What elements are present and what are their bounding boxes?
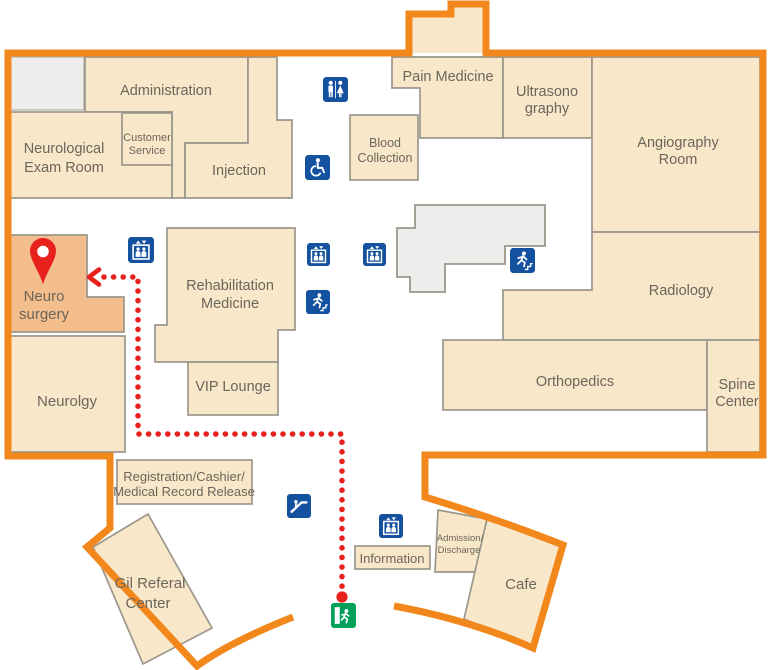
exit-icon (331, 603, 356, 628)
room-neuro-surgery-label-1: Neuro (24, 288, 65, 305)
restroom-icon (323, 77, 348, 102)
room-neuro-surgery-label-2: surgery (19, 306, 70, 323)
elevator-icon-4 (379, 514, 403, 538)
room-customer-service-label-1: Customer (123, 132, 171, 144)
room-rehabilitation-label-1: Rehabilitation (186, 278, 274, 294)
floor-map-canvas: Administration Neurological Exam Room Cu… (0, 0, 771, 670)
room-rehabilitation-label-2: Medicine (201, 296, 259, 312)
room-spine-center-label-2: Center (715, 394, 759, 410)
route-origin-dot (336, 591, 347, 602)
room-injection-label: Injection (212, 163, 266, 179)
elevator-icon-3 (363, 243, 386, 266)
room-neurological-label-1: Neurological (24, 141, 105, 157)
room-angiography-label-1: Angiography (637, 135, 719, 151)
room-customer-service-label-2: Service (129, 145, 166, 157)
room-spine-center-label-1: Spine (718, 377, 755, 393)
room-rehabilitation[interactable] (155, 228, 295, 362)
room-neurolgy-label: Neurolgy (37, 393, 98, 410)
room-radiology-label: Radiology (649, 283, 714, 299)
room-angiography-label-2: Room (659, 152, 698, 168)
room-gil-referal-label-2: Center (125, 595, 170, 612)
room-registration-label-2: Medical Record Release (113, 484, 255, 499)
room-blood-collection-label-2: Collection (358, 151, 413, 165)
elevator-icon-2 (307, 243, 330, 266)
room-neurological-label-2: Exam Room (24, 160, 104, 176)
hospital-floor-map: Administration Neurological Exam Room Cu… (0, 0, 771, 670)
room-administration-label: Administration (120, 83, 212, 99)
room-admission-label-1: Admission/ (437, 533, 484, 544)
emergency-exit-icon-2 (510, 248, 535, 273)
room-information-label: Information (359, 551, 424, 566)
wheelchair-icon (305, 155, 330, 180)
room-ultrasonography-label-1: Ultrasono (516, 84, 578, 100)
escalator-icon (287, 494, 311, 518)
room-gil-referal-label-1: Gil Referal (115, 575, 186, 592)
room-registration-label-1: Registration/Cashier/ (123, 469, 245, 484)
room-blood-collection-label-1: Blood (369, 136, 401, 150)
emergency-exit-icon-1 (306, 290, 330, 314)
room-vip-lounge-label: VIP Lounge (195, 379, 271, 395)
room-pain-medicine-label: Pain Medicine (402, 69, 493, 85)
elevator-icon-1 (128, 237, 154, 263)
room-admission-label-2: Discharge (438, 545, 481, 556)
room-cafe-label: Cafe (505, 576, 537, 593)
room-ultrasonography-label-2: graphy (525, 101, 570, 117)
utility-block-top-left (10, 57, 84, 110)
room-orthopedics-label: Orthopedics (536, 374, 614, 390)
